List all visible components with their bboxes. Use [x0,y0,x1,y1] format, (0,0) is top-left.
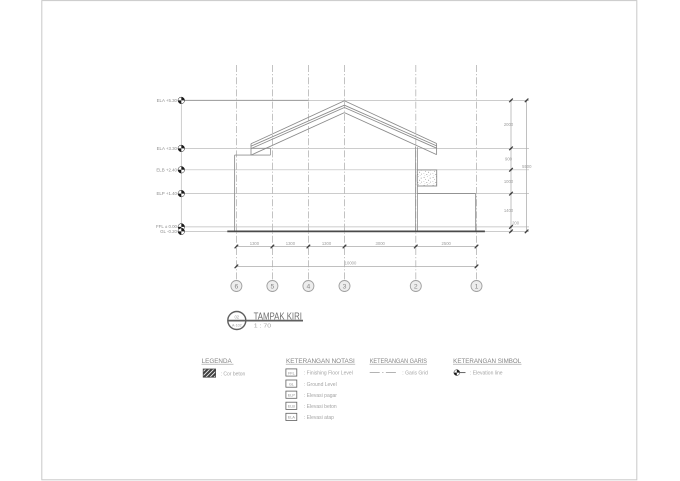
svg-text:: Cor beton: : Cor beton [221,371,246,377]
svg-text:ELP +1.40: ELP +1.40 [156,191,177,196]
svg-text:: Elevasi beton: : Elevasi beton [304,404,337,410]
svg-text:ELB +2.40: ELB +2.40 [156,167,177,172]
svg-text:KETERANGAN NOTASI: KETERANGAN NOTASI [286,358,355,365]
svg-text:A-102: A-102 [232,323,242,327]
svg-text:5: 5 [271,284,275,291]
svg-text:FFL: FFL [288,371,295,375]
svg-text:1: 1 [475,284,479,291]
svg-text:ELP: ELP [288,394,296,398]
svg-text:: Elevasi atap: : Elevasi atap [304,415,334,421]
svg-text:2: 2 [414,284,418,291]
svg-text:: Finishing Floor Level: : Finishing Floor Level [304,371,353,377]
svg-text:GL: GL [289,382,294,386]
svg-text:200: 200 [512,221,520,226]
svg-text:900: 900 [505,156,513,161]
svg-text:ELB: ELB [288,405,296,409]
svg-text:GL -0.20: GL -0.20 [160,229,177,234]
svg-text:: Garis Grid: : Garis Grid [402,370,428,376]
svg-text:1 : 70: 1 : 70 [254,323,271,329]
svg-text:KETERANGAN GARIS: KETERANGAN GARIS [370,358,427,365]
svg-text:ELA +3.30: ELA +3.30 [157,146,178,151]
svg-text:5500: 5500 [522,164,532,169]
svg-text:10000: 10000 [345,261,357,266]
svg-text:4: 4 [307,284,311,291]
svg-text:: Elevation line: : Elevation line [470,370,503,376]
svg-text:6: 6 [235,284,239,291]
svg-text:02: 02 [234,314,239,319]
svg-text:1300: 1300 [250,241,260,246]
svg-text:1000: 1000 [504,179,514,184]
svg-text:KETERANGAN SIMBOL: KETERANGAN SIMBOL [453,358,522,365]
svg-text:ELA: ELA [288,416,296,420]
svg-text:1300: 1300 [286,241,296,246]
svg-text:: Elevasi pagar: : Elevasi pagar [304,393,337,399]
svg-text:LEGENDA: LEGENDA [202,358,233,365]
svg-text:3: 3 [343,284,347,291]
svg-text:1300: 1300 [322,241,332,246]
svg-text:TAMPAK KIRI: TAMPAK KIRI [254,311,302,322]
svg-text:1400: 1400 [504,208,514,213]
svg-text:2500: 2500 [442,241,452,246]
svg-text:3000: 3000 [376,241,386,246]
svg-text:: Ground Level: : Ground Level [304,382,337,388]
svg-text:ELA +5.30: ELA +5.30 [157,98,178,103]
svg-text:2000: 2000 [504,122,514,127]
